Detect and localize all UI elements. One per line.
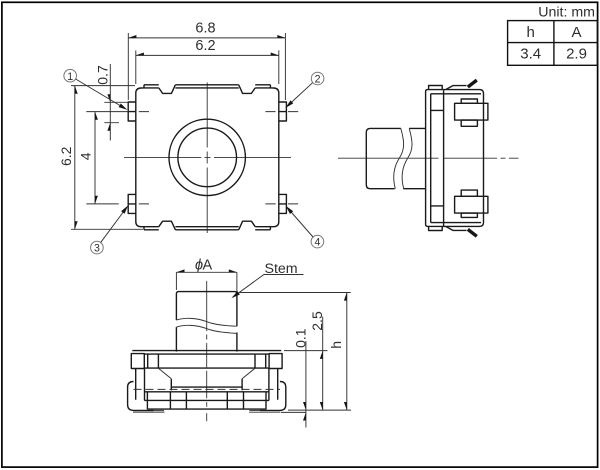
svg-text:2: 2 xyxy=(315,74,321,86)
svg-text:Unit: mm: Unit: mm xyxy=(538,4,595,20)
svg-text:3.4: 3.4 xyxy=(520,45,541,62)
svg-text:6.2: 6.2 xyxy=(195,38,215,54)
svg-text:6.8: 6.8 xyxy=(195,21,215,37)
svg-text:h: h xyxy=(328,341,344,349)
svg-text:4: 4 xyxy=(78,152,94,160)
svg-text:3: 3 xyxy=(94,243,100,255)
svg-text:4: 4 xyxy=(314,237,320,249)
svg-text:2.5: 2.5 xyxy=(309,311,325,331)
svg-text:1: 1 xyxy=(67,71,73,83)
svg-text:0.1: 0.1 xyxy=(292,328,308,348)
svg-text:h: h xyxy=(527,24,535,41)
svg-text:2.9: 2.9 xyxy=(566,45,587,62)
svg-text:A: A xyxy=(203,257,213,273)
svg-text:A: A xyxy=(571,24,581,41)
svg-text:6.2: 6.2 xyxy=(58,146,74,166)
svg-text:0.7: 0.7 xyxy=(94,65,110,85)
